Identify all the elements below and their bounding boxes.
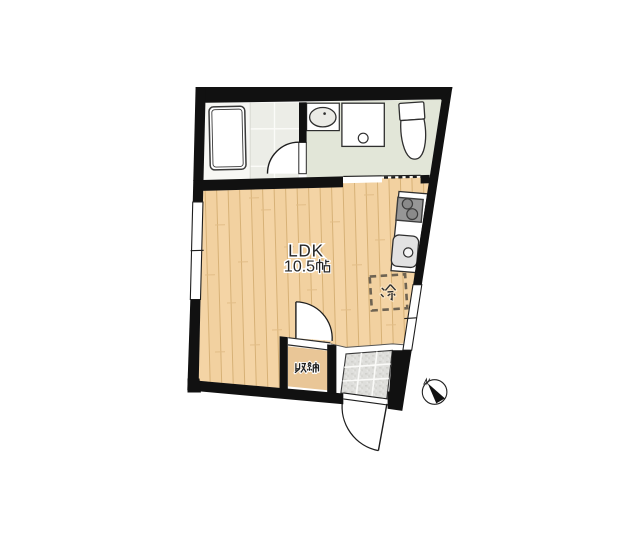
svg-text:LDK: LDK xyxy=(288,240,324,260)
svg-text:10.5: 10.5 xyxy=(284,259,315,276)
